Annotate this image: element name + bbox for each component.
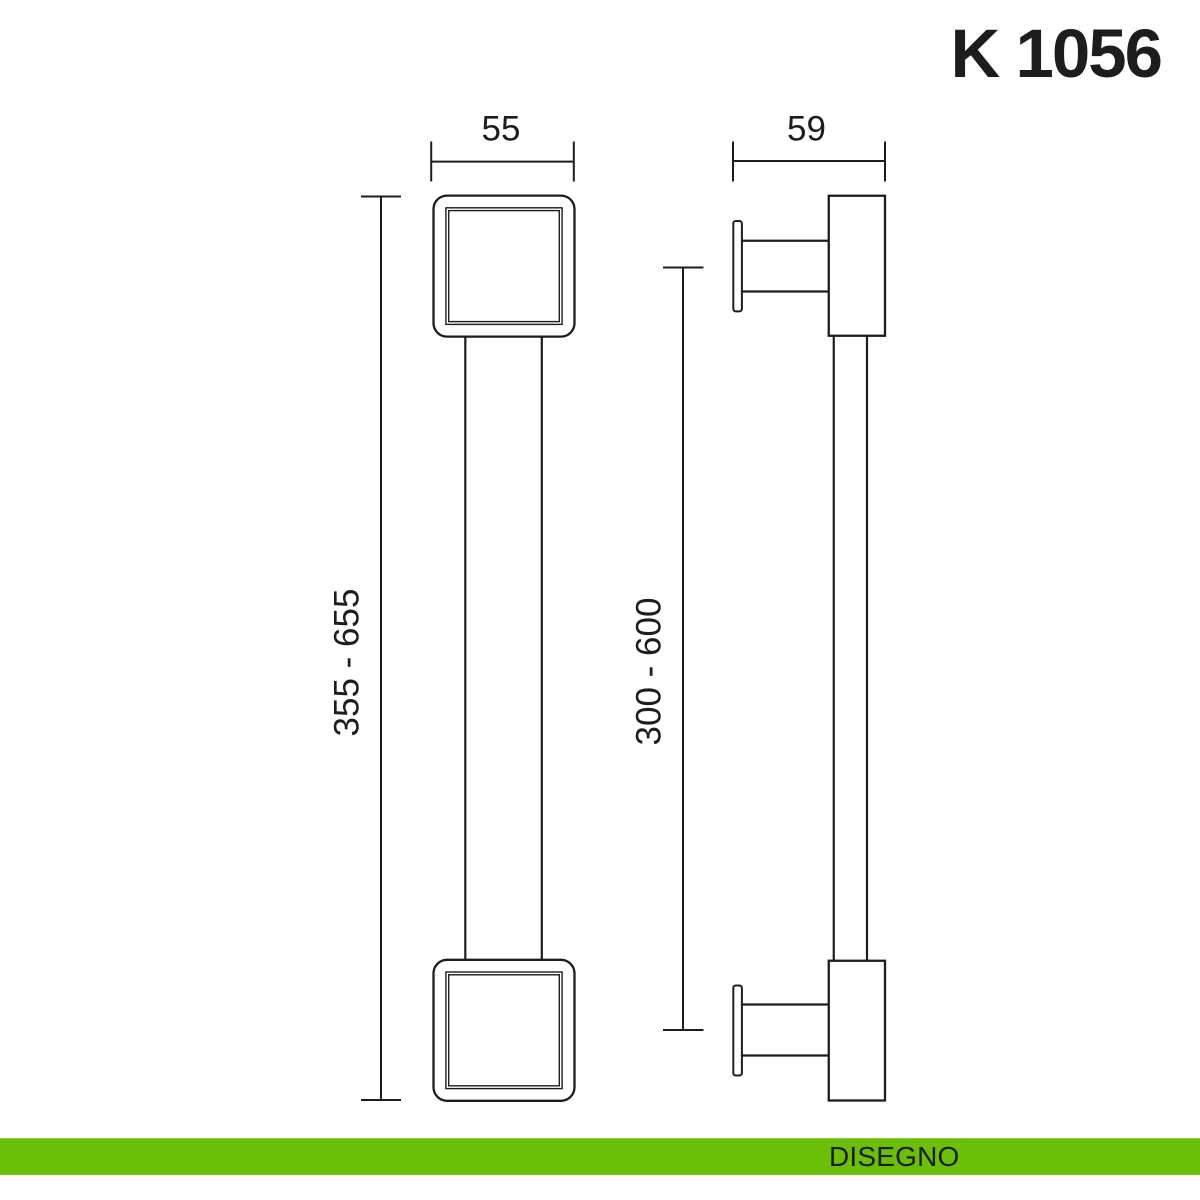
svg-text:59: 59	[787, 109, 826, 148]
svg-text:55: 55	[482, 109, 521, 148]
svg-text:K 1056: K 1056	[951, 15, 1162, 92]
svg-text:355 - 655: 355 - 655	[328, 589, 367, 737]
svg-text:300 - 600: 300 - 600	[630, 598, 669, 746]
svg-text:DISEGNO: DISEGNO	[829, 1141, 960, 1172]
